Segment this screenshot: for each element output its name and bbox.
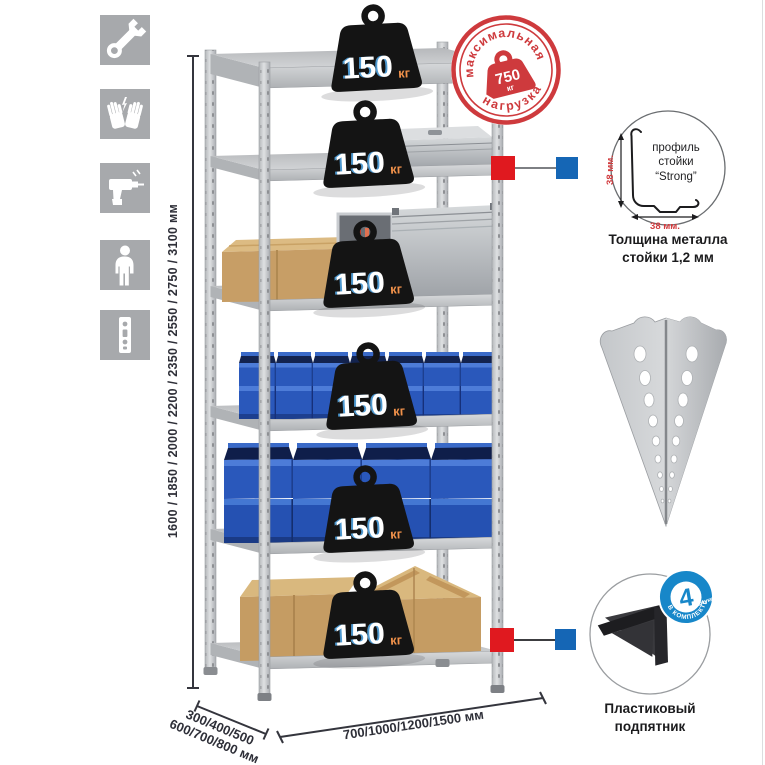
max-load-stamp: максимальная нагрузка 750 кг xyxy=(439,3,572,136)
height-dimension-label: 1600 / 1850 / 2000 / 2200 / 2350 / 2550 … xyxy=(166,204,180,538)
width-dimension-label: 700/1000/1200/1500 мм xyxy=(342,707,485,743)
profile-caption-2: стойки 1,2 мм xyxy=(622,250,714,265)
profile-label-2: стойки xyxy=(658,156,693,168)
profile-caption-1: Толщина металла xyxy=(608,232,728,247)
depth-dimension: 300/400/500 600/700/800 мм xyxy=(167,701,268,765)
metal-angle-post xyxy=(600,317,726,526)
width-dimension: 700/1000/1200/1500 мм xyxy=(277,692,546,743)
callout-red-marker-bottom xyxy=(490,628,514,652)
callout-foot xyxy=(490,628,576,652)
plastic-foot-detail: 4 штуки В КОМПЛЕКТЕ Пластиковый подпятни… xyxy=(590,566,717,734)
height-dimension: 1600 / 1850 / 2000 / 2200 / 2350 / 2550 … xyxy=(166,56,199,688)
profile-label-1: профиль xyxy=(652,142,700,154)
callout-blue-marker-bottom xyxy=(555,629,576,650)
foot-caption-2: подпятник xyxy=(615,719,686,734)
shelving-diagram: 150 150 кг xyxy=(0,0,765,765)
callout-profile xyxy=(491,156,578,180)
profile-label-3: “Strong” xyxy=(655,171,697,183)
callout-blue-marker-top xyxy=(556,157,578,179)
callout-red-marker-top xyxy=(491,156,515,180)
foot-caption-1: Пластиковый xyxy=(604,701,695,716)
product-diagram-page: 150 150 кг xyxy=(0,0,765,765)
profile-horizontal-dim: 38 мм. xyxy=(650,221,680,232)
profile-vertical-dim: 38 мм. xyxy=(605,155,616,185)
profile-detail: 38 мм. 38 мм. профиль стойки “Strong” То… xyxy=(605,111,728,265)
